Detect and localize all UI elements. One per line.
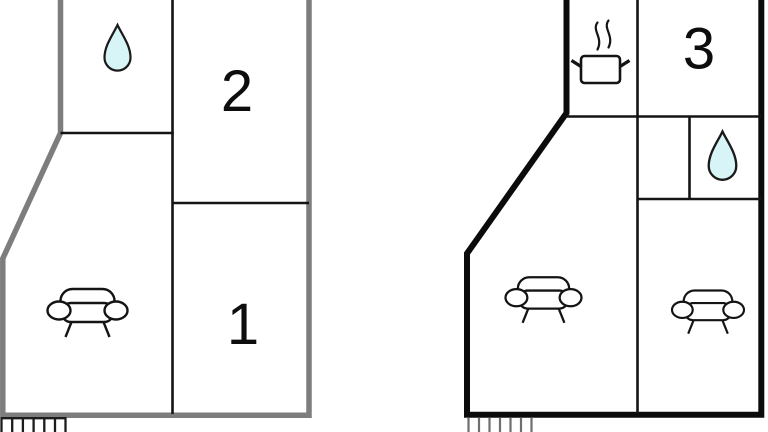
sofa-icon — [506, 277, 582, 323]
cooking-pot-icon — [572, 21, 630, 84]
sofa-icon — [48, 289, 128, 337]
entrance-hatch-marks — [1, 418, 67, 432]
floor-plans-canvas: 2 1 3 — [0, 0, 768, 432]
left-inner-walls — [61, 0, 310, 414]
outer-wall-outline — [3, 0, 309, 415]
room-1-label: 1 — [227, 292, 259, 357]
room-3-label: 3 — [683, 17, 715, 82]
water-drop-icon — [105, 25, 131, 71]
left-outer-walls — [3, 0, 309, 415]
water-drop-icon — [709, 131, 737, 179]
sofa-icon — [672, 291, 744, 334]
entrance-hatch-marks — [469, 418, 532, 432]
floor-plan-left: 2 1 — [1, 0, 309, 432]
floor-plan-right: 3 — [467, 0, 761, 432]
floor-plans-svg: 2 1 3 — [0, 0, 768, 432]
room-2-label: 2 — [221, 59, 253, 124]
